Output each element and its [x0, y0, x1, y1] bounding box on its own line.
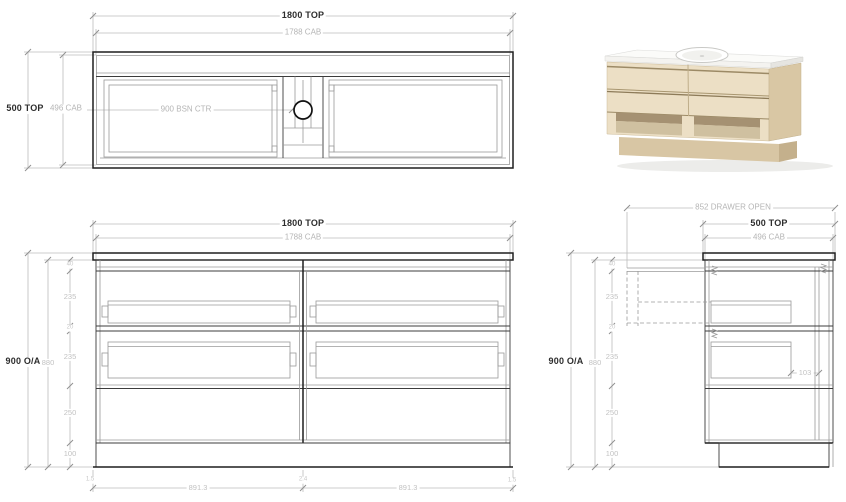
basin-waste-circle	[294, 101, 312, 119]
side-drawer-box-2	[711, 342, 791, 378]
plinth-front	[619, 137, 779, 162]
plan-view	[24, 12, 516, 171]
side-depth-overall-dim: 500 TOP	[748, 219, 789, 229]
front-drawer1-dim: 235	[62, 293, 79, 301]
render-3d	[605, 48, 833, 173]
front-gap-centre-dim: 2.4	[298, 477, 308, 484]
vanity-technical-drawing: 1800 TOP 1788 CAB 500 TOP 496 CAB 900 BS…	[0, 0, 846, 502]
front-height-cab-dim: 880	[40, 359, 57, 367]
side-drawer1-dim: 235	[604, 293, 621, 301]
side-runner-clearance-dim: 103	[797, 369, 814, 377]
open-shelf-right	[694, 116, 760, 139]
plinth-side	[779, 141, 797, 162]
cabinet-side	[769, 63, 801, 141]
front-edge-left-dim: 1.5	[85, 477, 95, 484]
front-drawer-width-right-dim: 891.3	[397, 484, 420, 492]
plan-width-overall-dim: 1800 TOP	[280, 11, 326, 21]
front-width-cab-dim: 1788 CAB	[283, 234, 323, 243]
plan-depth-cab-dim: 496 CAB	[48, 105, 84, 114]
front-shelf-dim: 250	[62, 409, 79, 417]
side-shelf-dim: 250	[604, 409, 621, 417]
side-drawer-box-1	[711, 301, 791, 323]
plan-width-cab-dim: 1788 CAB	[283, 29, 323, 38]
plan-drawer-box-right	[329, 80, 502, 157]
side-gap-top-dim: 40	[608, 262, 617, 269]
side-kick-dim: 100	[604, 450, 621, 458]
front-elevation	[24, 220, 516, 492]
side-depth-cab-dim: 496 CAB	[751, 234, 787, 243]
open-shelf-left	[616, 113, 682, 136]
front-edge-right-dim: 1.5	[507, 478, 517, 485]
front-width-overall-dim: 1800 TOP	[280, 219, 326, 229]
floor-shadow	[617, 160, 833, 172]
front-gap-mid-dim: 20	[66, 325, 75, 332]
plan-basin-centre-dim: 900 BSN CTR	[159, 106, 214, 115]
front-kick-dim: 100	[62, 450, 79, 458]
open-drawer-outline	[627, 268, 711, 326]
basin	[676, 48, 728, 63]
drawing-canvas	[0, 0, 846, 502]
front-drawer2-dim: 235	[62, 353, 79, 361]
front-gap-top-dim: 40	[66, 262, 75, 269]
side-height-cab-dim: 880	[587, 359, 604, 367]
front-height-overall-dim: 900 O/A	[4, 357, 43, 367]
plan-depth-overall-dim: 500 TOP	[4, 104, 45, 114]
front-drawer-width-left-dim: 891.3	[187, 484, 210, 492]
side-gap-mid-dim: 20	[608, 325, 617, 332]
plan-drawer-box-left	[104, 80, 277, 157]
side-elevation	[566, 205, 838, 470]
side-drawer-open-dim: 852 DRAWER OPEN	[693, 204, 773, 213]
side-drawer2-dim: 235	[604, 353, 621, 361]
side-height-overall-dim: 900 O/A	[547, 357, 586, 367]
